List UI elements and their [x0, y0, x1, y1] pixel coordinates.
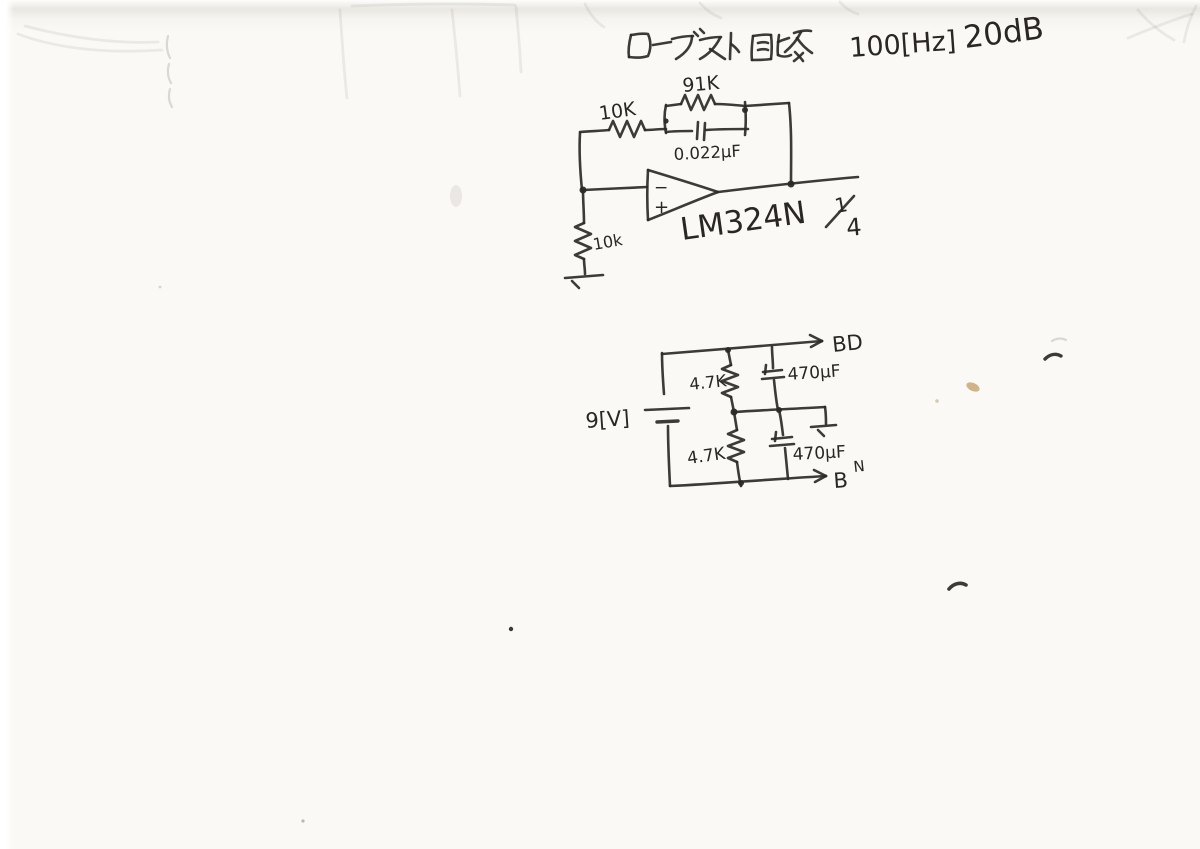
series-resistor-label: 10K [598, 98, 638, 125]
wire-feedback-left [580, 133, 582, 190]
negative-rail-label-b: B [833, 468, 849, 493]
wire-feedback-down [789, 103, 791, 184]
title-frequency-label: 100[Hz] [848, 26, 957, 64]
battery-icon [645, 408, 689, 422]
opamp-fraction-label: 1 4 [826, 192, 863, 242]
stray-marks [159, 286, 1066, 823]
faint-smudge [450, 185, 462, 207]
capacitor-0022uf-icon [697, 122, 705, 140]
wire-top [580, 130, 609, 132]
positive-rail-label: BD [831, 330, 864, 357]
wire-inverting-input [583, 187, 647, 190]
boost-circuit-schematic: 10K 91K 0.022µF − + LM324N [565, 72, 863, 288]
wire-positive-rail [662, 341, 822, 354]
battery-voltage-label: 9[V] [585, 406, 631, 433]
wire-output [718, 177, 858, 192]
resistor-10k-series-icon [609, 121, 645, 137]
ground-symbol-icon [811, 425, 836, 436]
opamp-noninverting-label: + [654, 197, 669, 218]
page-title: 100[Hz] 20dB [629, 10, 1046, 64]
power-supply-schematic: BD 9[V] B N 4.7K 4.7K [585, 330, 866, 493]
upper-resistor-label: 4.7K [688, 371, 728, 394]
ground-symbol-icon [565, 275, 603, 288]
scanned-paper-page: 100[Hz] 20dB 10K 91K 0.022µF [0, 0, 1200, 849]
ink-speck [509, 627, 513, 631]
svg-text:4: 4 [845, 213, 863, 242]
ink-smudge [965, 380, 981, 393]
resistor-91k-icon [681, 95, 715, 110]
title-gain-label: 20dB [962, 10, 1046, 56]
opamp-inverting-label: − [654, 178, 668, 198]
wire-negative-rail [670, 476, 826, 486]
negative-rail-label-n: N [853, 457, 866, 476]
resistor-4k7-lower-icon [728, 430, 744, 462]
lower-resistor-label: 4.7K [686, 444, 727, 469]
wire-feedback-right [745, 103, 789, 106]
resistor-10k-ground-icon [575, 223, 591, 259]
opamp-part-label: LM324N [678, 195, 808, 248]
title-japanese-text [629, 29, 812, 61]
feedback-resistor-label: 91K [682, 72, 721, 97]
upper-capacitor-label: 470µF [787, 361, 841, 385]
lower-capacitor-label: 470µF [792, 442, 846, 465]
feedback-capacitor-label: 0.022µF [673, 142, 741, 164]
ground-resistor-label: 10k [591, 230, 624, 254]
